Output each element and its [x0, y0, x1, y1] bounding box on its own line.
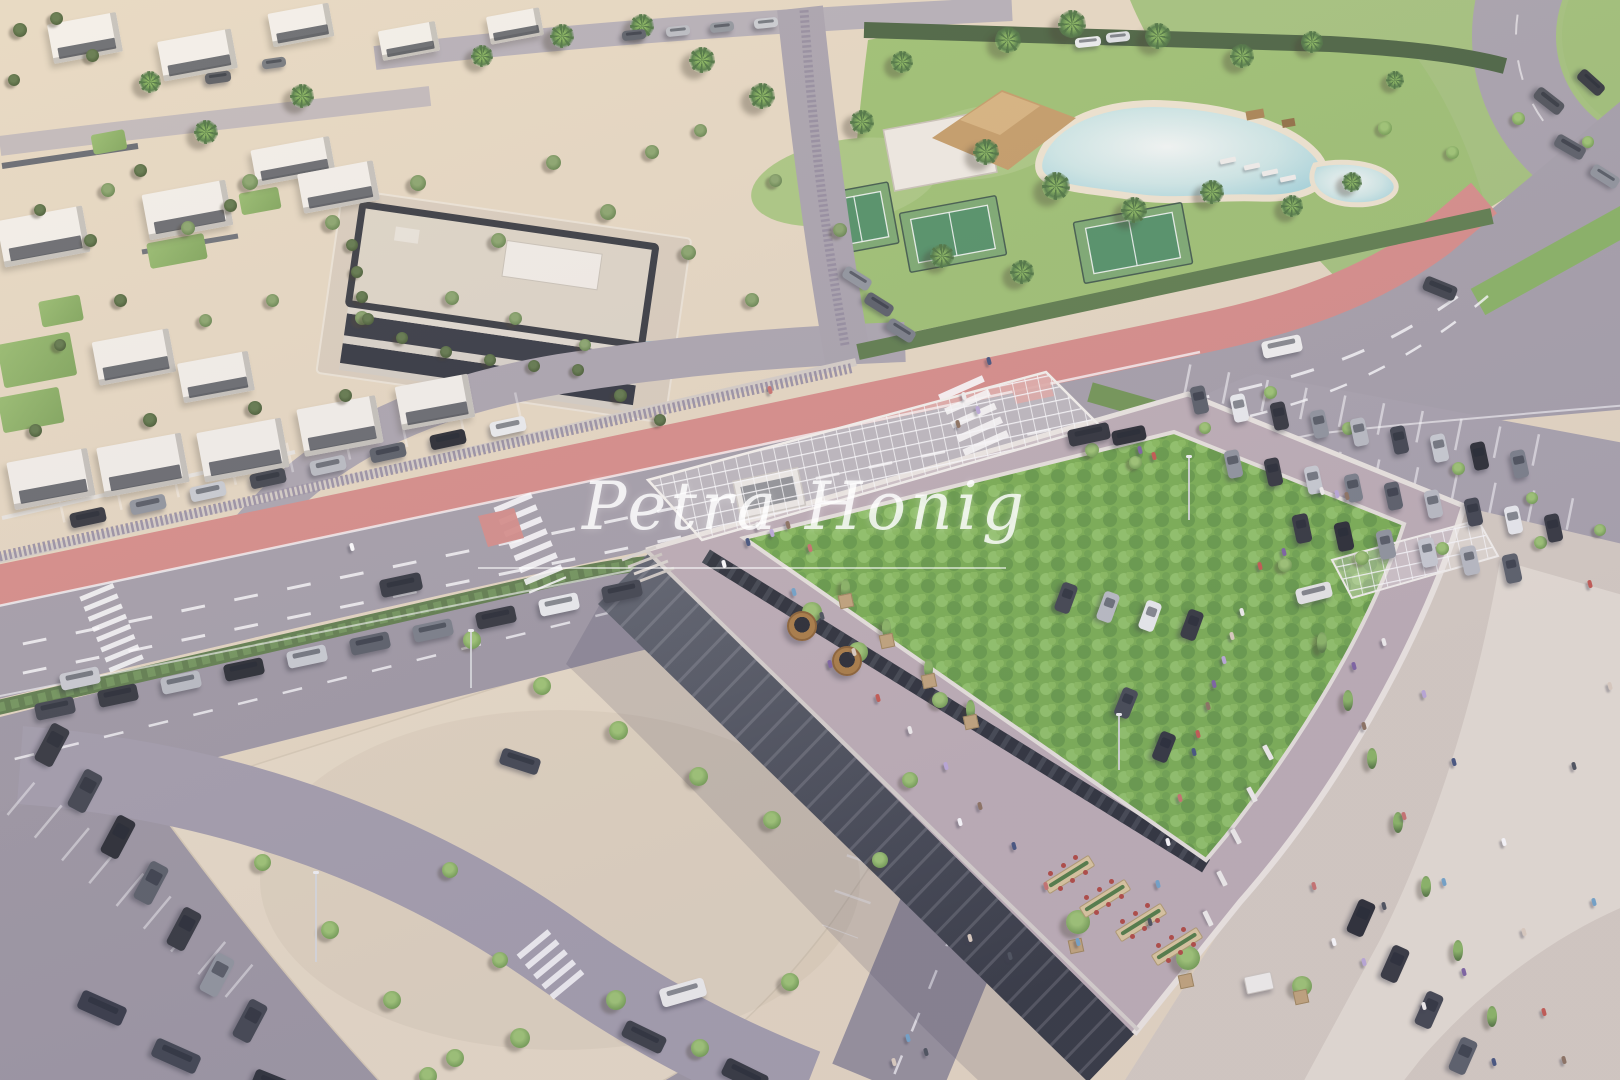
aerial-render-scene: Petra Honig: [0, 0, 1620, 1080]
watermark-underline: [478, 567, 1006, 569]
watermark-signature: Petra Honig: [582, 468, 1028, 545]
